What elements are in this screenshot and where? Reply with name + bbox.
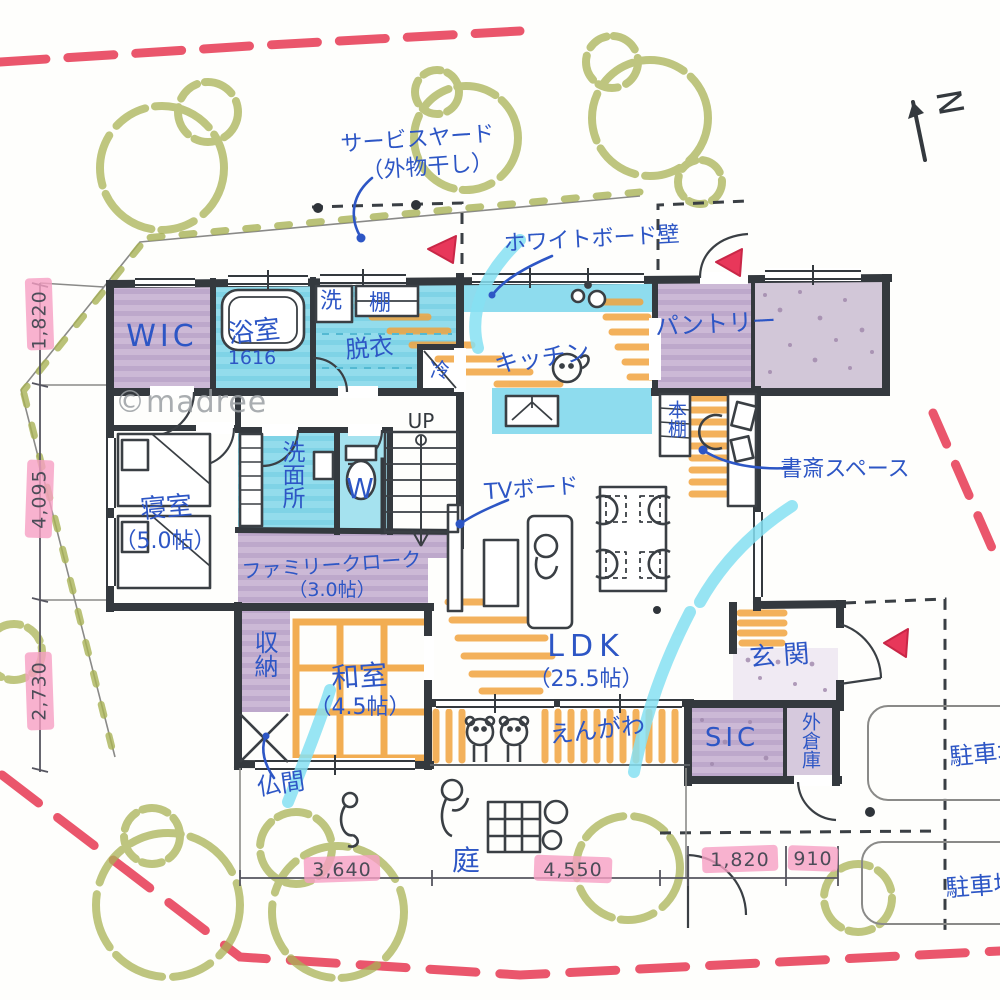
paper — [731, 436, 753, 461]
label-bedroom-size: （5.0帖） — [115, 529, 216, 554]
label-washitsu: 和室 — [330, 658, 388, 695]
label-garden: 庭 — [452, 844, 480, 877]
label-washitsu-size: （4.5帖） — [310, 695, 411, 720]
stove-burner — [572, 290, 584, 302]
dim-left-2: 4,095 — [29, 469, 51, 528]
dim-left-3: 2,730 — [29, 661, 51, 720]
label-service-yard-2: （外物干し） — [361, 150, 494, 184]
label-family-cloak-size: （3.0帖） — [288, 579, 375, 601]
label-shelf: 棚 — [369, 291, 391, 316]
garden-doodles — [341, 780, 567, 852]
paper — [731, 402, 756, 430]
entry-triangle — [716, 249, 742, 276]
label-storage: 収納 — [250, 630, 278, 678]
label-study-space: 書斎スペース — [780, 457, 909, 482]
label-bath-size: 1616 — [228, 347, 276, 369]
person-on-sofa — [535, 535, 557, 557]
label-fridge: 冷 — [430, 358, 450, 382]
label-kitchen: キッチン — [492, 338, 591, 379]
dim-bottom-2: 4,550 — [543, 859, 602, 881]
north-arrow: N — [908, 87, 971, 160]
entry-triangle — [884, 629, 908, 657]
label-wic: WIC — [126, 319, 197, 354]
label-tv-board: TVボード — [483, 474, 580, 506]
label-washer: 洗 — [320, 289, 342, 314]
label-engawa: えんがわ — [548, 711, 646, 749]
label-parking-upper: 駐車場 — [948, 737, 1000, 771]
label-dressing: 脱衣 — [344, 332, 394, 364]
label-genkan: 玄関 — [748, 639, 818, 674]
label-sic: SIC — [705, 723, 759, 753]
dim-bottom-1: 3,640 — [312, 859, 371, 881]
floor-plan-sketch: 1,820 4,095 2,730 3,640 4,550 1,820 910 … — [0, 0, 1000, 1000]
washbasin — [314, 452, 333, 479]
label-bath: 浴室 — [227, 314, 282, 349]
watermark: ©madree — [115, 385, 267, 420]
engawa-people — [466, 717, 528, 762]
label-bookshelf: 本棚 — [665, 400, 687, 439]
label-wc: W — [346, 472, 374, 505]
stove-burner — [589, 291, 605, 307]
toilet-tank — [346, 446, 376, 460]
label-ldk-size: （25.5帖） — [529, 667, 644, 692]
dim-bottom-4: 910 — [793, 848, 832, 870]
label-butsuma: 仏間 — [255, 767, 306, 801]
label-ldk: LDK — [547, 629, 625, 664]
plan-canvas: 1,820 4,095 2,730 3,640 4,550 1,820 910 … — [0, 0, 1000, 1000]
sofa — [528, 516, 572, 628]
entry-triangle — [428, 236, 456, 263]
label-stairs-up: UP — [408, 409, 435, 433]
label-parking-lower: 駐車場 — [945, 870, 1000, 903]
label-washroom: 洗面所 — [278, 440, 306, 509]
north-label: N — [927, 87, 971, 119]
label-outer-storage: 外倉庫 — [799, 712, 821, 769]
label-whiteboard-wall: ホワイトボード壁 — [503, 222, 680, 256]
dim-left-1: 1,820 — [29, 290, 51, 349]
side-table — [484, 540, 518, 606]
dim-bottom-3: 1,820 — [710, 849, 769, 871]
label-bedroom: 寝室 — [139, 491, 193, 525]
